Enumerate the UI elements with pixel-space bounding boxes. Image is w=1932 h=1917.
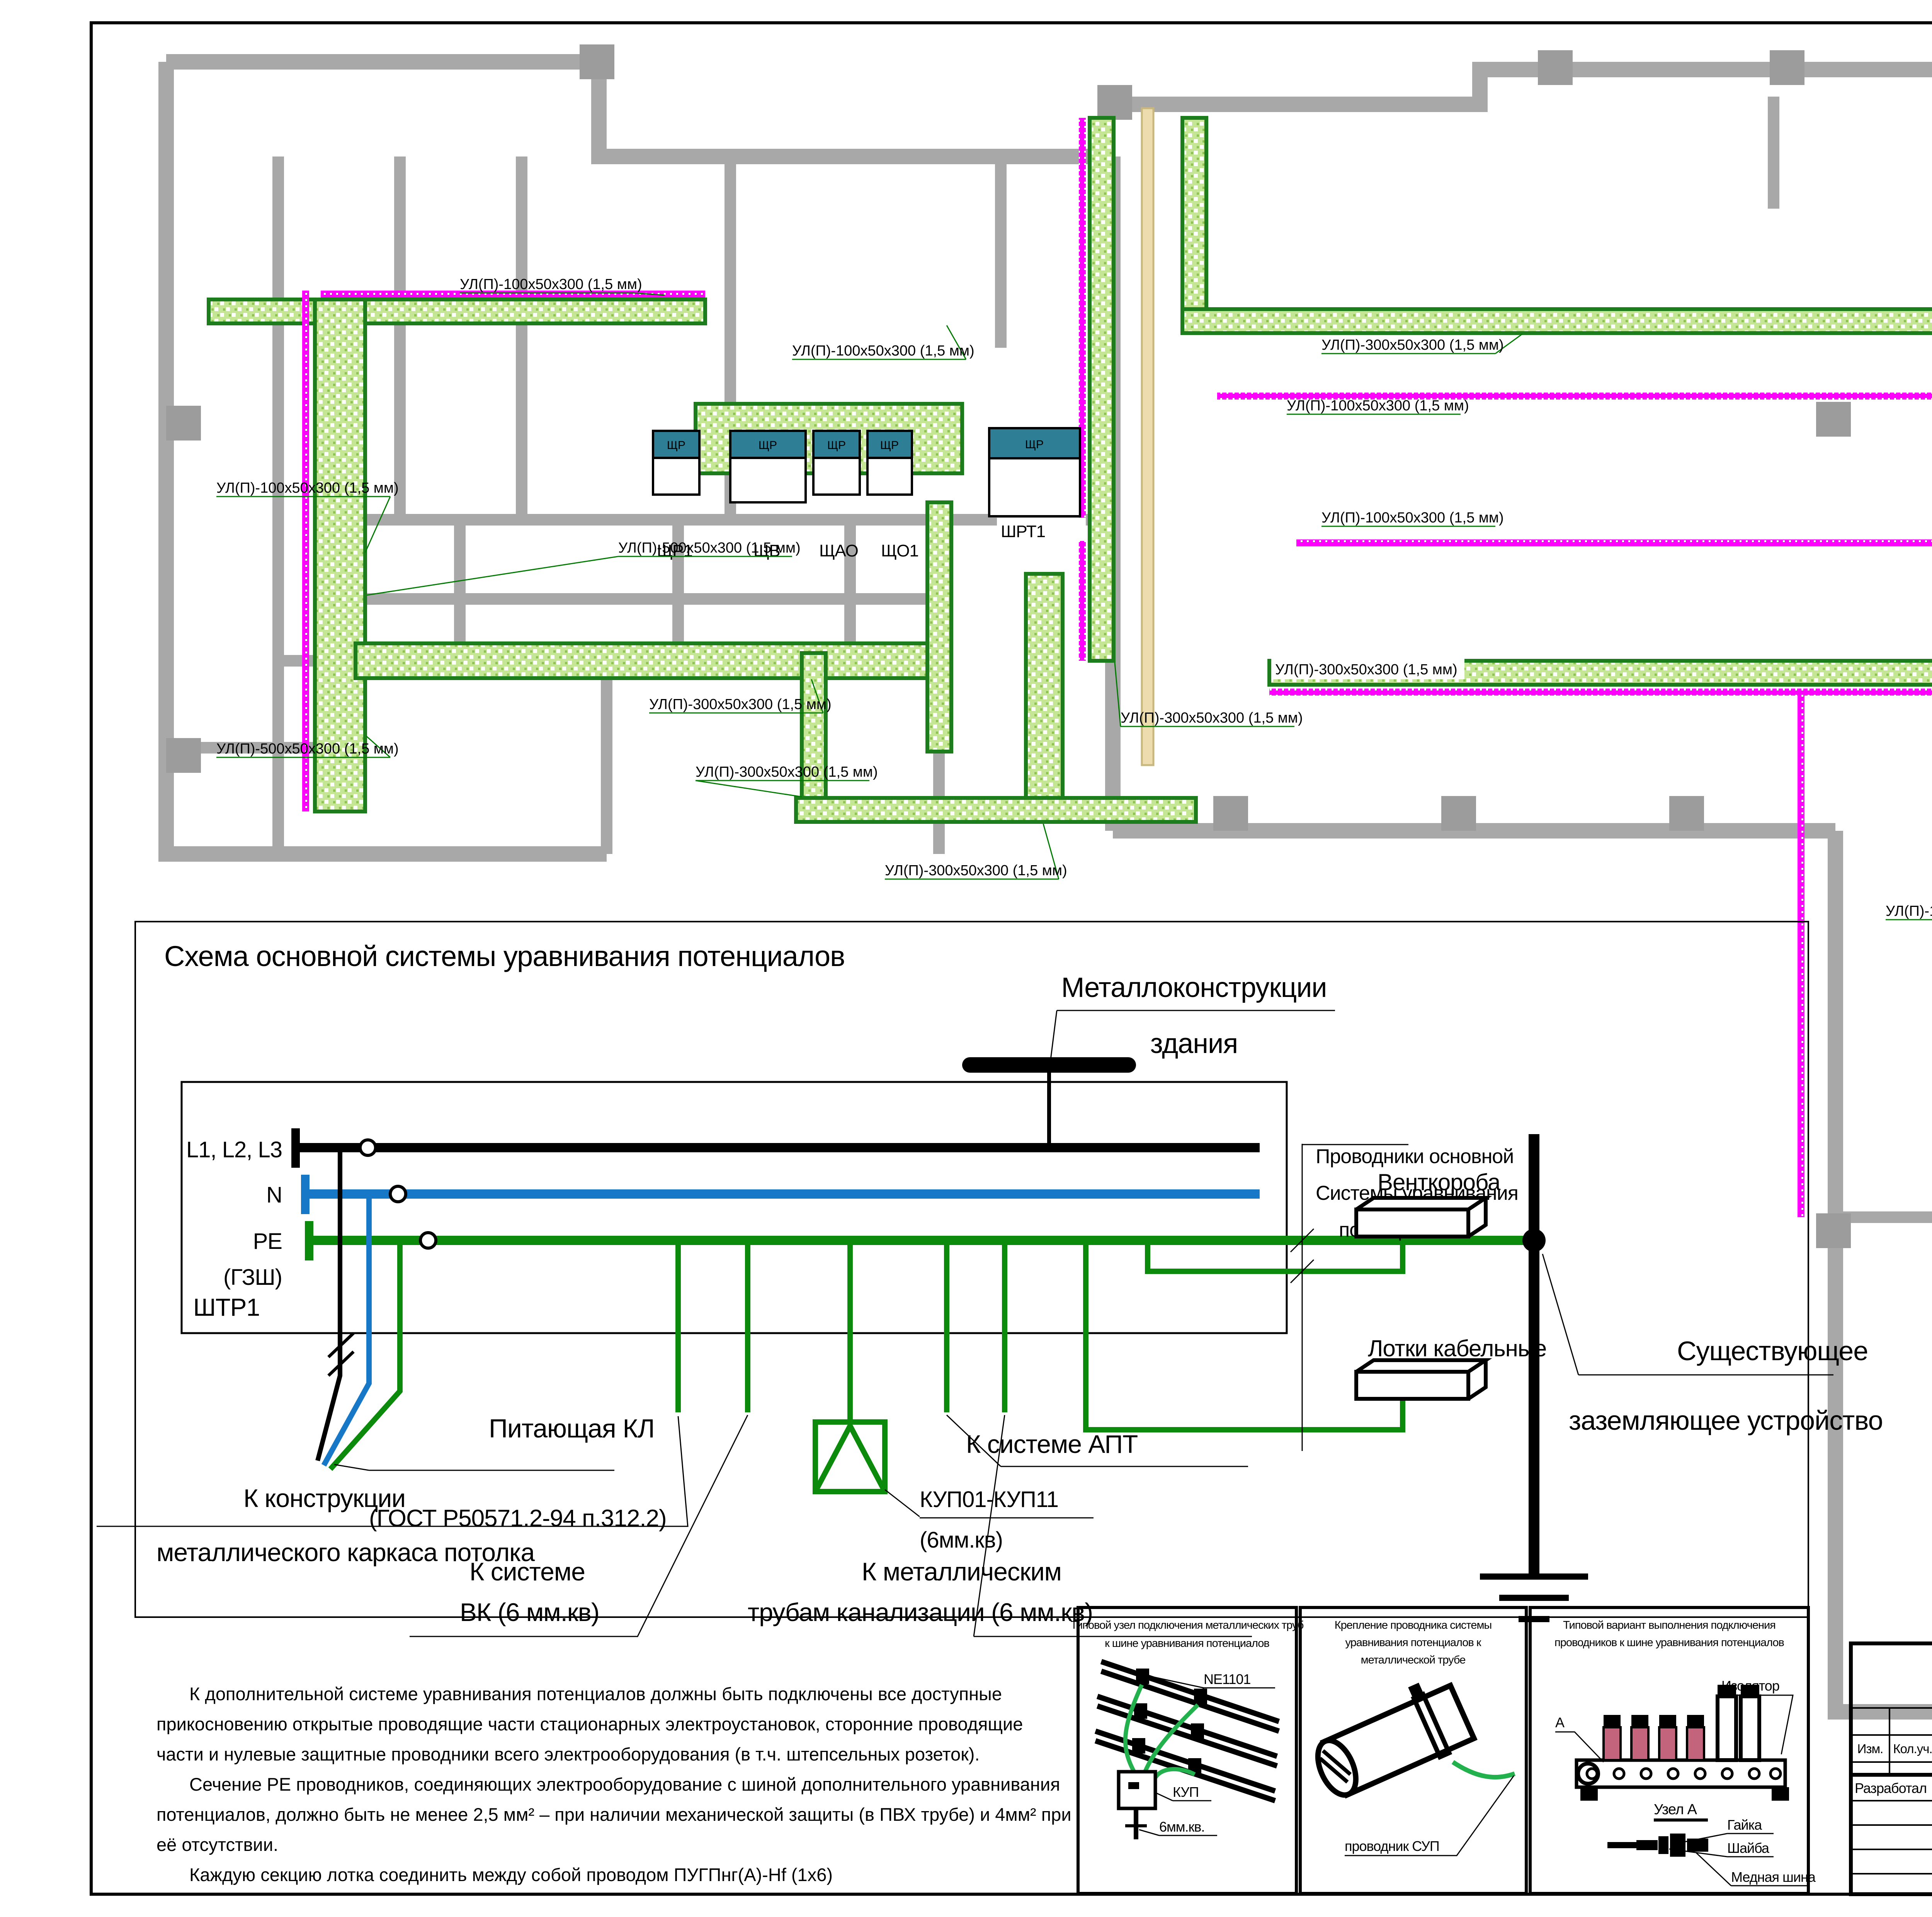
detail3-title-2: проводников к шине уравнивания потенциал… <box>1554 1636 1784 1649</box>
detail1-6mm: 6мм.кв. <box>1159 1819 1204 1835</box>
tray-label: УЛ(П)-100х50х300 (1,5 мм) <box>792 343 975 359</box>
drawing-sheet: ЩР ЩР ЩР ЩР ЩР ЩР1 ЩВ ЩАО ЩО1 ШРТ1 <box>0 0 1932 1917</box>
conductors-label-1: Проводники основной <box>1316 1145 1514 1168</box>
detail1-ne1101: NE1101 <box>1204 1671 1250 1687</box>
callout-vk-2: ВК (6 мм.кв) <box>460 1598 599 1626</box>
detail3-shaiba: Шайба <box>1727 1840 1770 1856</box>
pipe <box>1304 1671 1475 1803</box>
existing-ground-2: заземляющее устройство <box>1569 1405 1883 1436</box>
note-line: Сечение PE проводников, соединяющих элек… <box>189 1774 1060 1795</box>
bolt-detail <box>1607 1834 1708 1857</box>
tray-label: УЛ(П)-300х50х300 (1,5 мм) <box>649 696 832 713</box>
note-line: её отсутствии. <box>156 1834 278 1855</box>
panel-label: ЩО1 <box>881 541 918 560</box>
col-koluch: Кол.уч. <box>1893 1742 1932 1756</box>
tray-label: УЛ(П)-100х50х300 (1,5 мм) <box>1287 398 1469 414</box>
detail3-gaika: Гайка <box>1727 1817 1762 1833</box>
panel-label: ШРТ1 <box>1001 522 1045 541</box>
note-line: Каждую секцию лотка соединить между собо… <box>189 1864 833 1885</box>
panel-badge: ЩР <box>1025 438 1044 451</box>
tray-label: УЛ(П)-100х50х300 (1,5 мм) <box>1321 510 1504 526</box>
panel-label: ЩАО <box>819 541 858 560</box>
detail1-kup: КУП <box>1173 1784 1199 1800</box>
shtr1-box <box>182 1082 1287 1333</box>
bus-l123-label: L1, L2, L3 <box>186 1137 282 1162</box>
detail-box-2: Крепление проводника системы уравнивания… <box>1300 1607 1526 1893</box>
kup-size: (6мм.кв) <box>920 1527 1003 1553</box>
schematic: Схема основной системы уравнивания потен… <box>97 922 1883 1636</box>
panel-badge: ЩР <box>759 439 777 452</box>
detail2-sup: проводник СУП <box>1345 1838 1439 1854</box>
detail3-bus: Медная шина <box>1731 1869 1816 1885</box>
bus-pe-label: PE <box>253 1229 282 1254</box>
floor-plan: ЩР ЩР ЩР ЩР ЩР ЩР1 ЩВ ЩАО ЩО1 ШРТ1 <box>166 44 1932 1712</box>
detail3-title-1: Типовой вариант выполнения подключения <box>1563 1619 1776 1631</box>
tray-label: УЛ(П)-500х50х300 (1,5 мм) <box>618 540 801 556</box>
detail1-title-1: Типовой узел подключения металлических т… <box>1071 1619 1304 1631</box>
kup-box <box>1119 1772 1155 1808</box>
note-line: прикосновению открытые проводящие части … <box>156 1714 1023 1734</box>
detail2-title-1: Крепление проводника системы <box>1335 1619 1492 1631</box>
existing-ground-1: Существующее <box>1677 1336 1868 1366</box>
feeder-label: Питающая КЛ <box>489 1414 655 1443</box>
bus-n-label: N <box>266 1182 282 1208</box>
tray-label: УЛ(П)-300х50х300 (1,5 мм) <box>696 764 878 780</box>
razrab-label: Разработал <box>1855 1780 1927 1796</box>
note-line: части и нулевые защитные проводники всег… <box>156 1744 980 1764</box>
shtr1-label: ШТР1 <box>193 1293 260 1321</box>
ground-symbol <box>1480 1577 1588 1619</box>
title-block: 32-53-09Р-ЭОМ Ресторан "The ПИВО", г. Мо… <box>1851 1643 1932 1894</box>
tray-label: УЛ(П)-300х50х300 (1,5 мм) <box>1321 337 1504 353</box>
schematic-title: Схема основной системы уравнивания потен… <box>164 940 845 972</box>
callout-sewer-1: К металлическим <box>862 1557 1061 1586</box>
detail2-title-3: металлической трубе <box>1361 1654 1466 1666</box>
kup-symbol <box>815 1422 885 1492</box>
tray-label: УЛ(П)-300х50х300 (1,5 мм) <box>1121 710 1303 726</box>
detail3-uzel-a: Узел А <box>1654 1801 1697 1818</box>
detail1-title-2: к шине уравнивания потенциалов <box>1105 1637 1269 1650</box>
bus-gzsh-label: (ГЗШ) <box>223 1265 282 1290</box>
tray-label: УЛ(П)-100х50х300 (1,5 мм) <box>1886 903 1932 919</box>
callout-structure-1: К конструкции <box>243 1484 405 1512</box>
tray-label: УЛ(П)-500х50х300 (1,5 мм) <box>216 741 399 757</box>
feeder-gost: (ГОСТ Р50571.2-94 п.312.2) <box>369 1505 667 1532</box>
vent-label: Венткороба <box>1378 1169 1501 1195</box>
notes: К дополнительной системе уравнивания пот… <box>156 1684 1071 1885</box>
vent-symbol <box>1356 1198 1486 1237</box>
bonding-wire <box>1453 1762 1515 1777</box>
callout-sewer-2: трубам канализации (6 мм.кв) <box>748 1598 1093 1626</box>
note-line: К дополнительной системе уравнивания пот… <box>189 1684 1002 1704</box>
detail2-title-2: уравнивания потенциалов к <box>1345 1636 1481 1649</box>
detail-box-1: Типовой узел подключения металлических т… <box>1071 1607 1304 1893</box>
detail3-izolyator: Изолятор <box>1721 1678 1779 1694</box>
metal-label-2: здания <box>1150 1028 1238 1059</box>
tray-label: УЛ(П)-100х50х300 (1,5 мм) <box>216 480 399 496</box>
detail-box-3: Типовой вариант выполнения подключения п… <box>1530 1607 1816 1893</box>
panel-badge: ЩР <box>667 439 685 452</box>
tray-label: УЛ(П)-300х50х300 (1,5 мм) <box>885 862 1067 879</box>
cable-tray-power <box>209 118 1932 1339</box>
note-line: потенциалов, должно быть не менее 2,5 мм… <box>156 1804 1071 1825</box>
panel-badge: ЩР <box>880 439 899 452</box>
panel-badge: ЩР <box>827 439 846 452</box>
trays-symbol <box>1356 1360 1486 1399</box>
feeder-n <box>324 1194 369 1465</box>
tray-label: УЛ(П)-100х50х300 (1,5 мм) <box>460 276 642 293</box>
trays-label: Лотки кабельные <box>1368 1335 1546 1361</box>
callout-apt: К системе АПТ <box>966 1430 1138 1458</box>
callout-vk-1: К системе <box>469 1557 585 1586</box>
detail3-a: А <box>1555 1715 1565 1730</box>
kup-label: КУП01-КУП11 <box>920 1487 1058 1512</box>
metal-label-1: Металлоконструкции <box>1061 972 1327 1003</box>
tray-label: УЛ(П)-300х50х300 (1,5 мм) <box>1275 662 1458 678</box>
col-izm: Изм. <box>1857 1742 1883 1756</box>
tray-labels: УЛ(П)-100х50х300 (1,5 мм) УЛ(П)-300х50х3… <box>216 276 1932 997</box>
